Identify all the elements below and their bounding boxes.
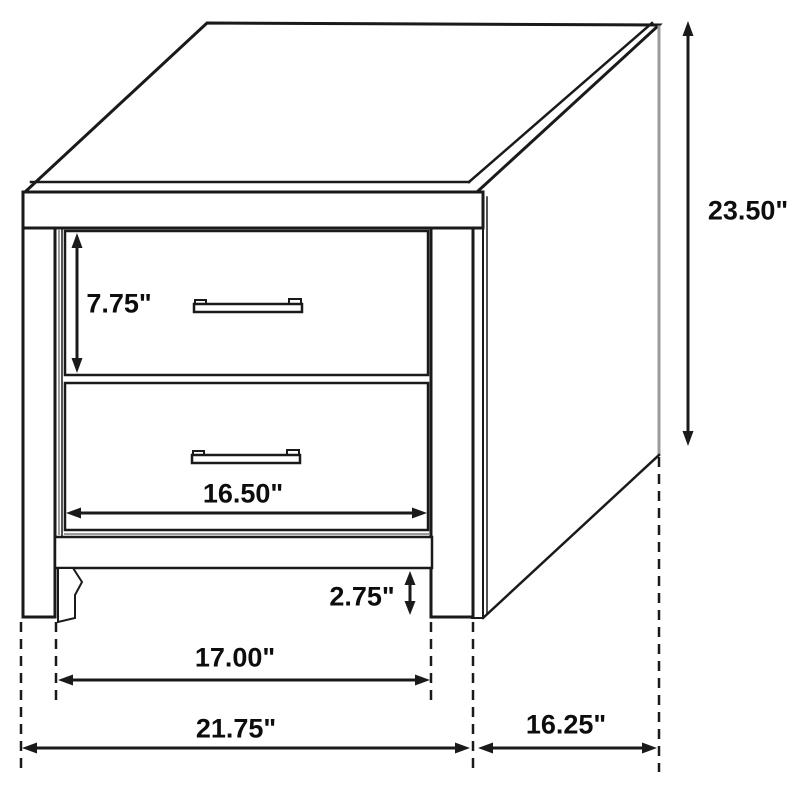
overall-height-dimension-arrow (683, 21, 694, 446)
overall-depth-dimension-label: 16.25" (526, 712, 606, 739)
bottom-rail (55, 537, 432, 568)
nightstand-dimension-diagram: 7.75" 23.50" 16.50" 2.75" 17.00" 21.75" … (0, 0, 800, 800)
inner-leg-span-dimension-label: 17.00" (195, 645, 275, 672)
overall-height-dimension-label: 23.50" (708, 198, 788, 225)
table-top-surface (25, 23, 659, 192)
right-front-leg (431, 228, 473, 617)
leg-clearance-dimension-arrow (405, 571, 416, 615)
side-panel-bottom-edge (483, 455, 659, 618)
inner-leg-span-dimension-arrow (58, 675, 430, 686)
nightstand (23, 23, 659, 622)
left-leg-side-face (58, 568, 82, 622)
overall-width-dimension-label: 21.75" (196, 716, 276, 743)
leg-clearance-dimension-label: 2.75" (329, 584, 394, 611)
left-front-leg (23, 228, 55, 617)
overall-width-dimension-arrow (22, 743, 470, 754)
drawer-height-dimension-label: 7.75" (86, 291, 151, 318)
drawer-width-dimension-label: 16.50" (203, 481, 283, 508)
nightstand-line-drawing (0, 0, 800, 800)
overall-depth-dimension-arrow (478, 743, 657, 754)
face-frame-top-rail (23, 192, 483, 228)
